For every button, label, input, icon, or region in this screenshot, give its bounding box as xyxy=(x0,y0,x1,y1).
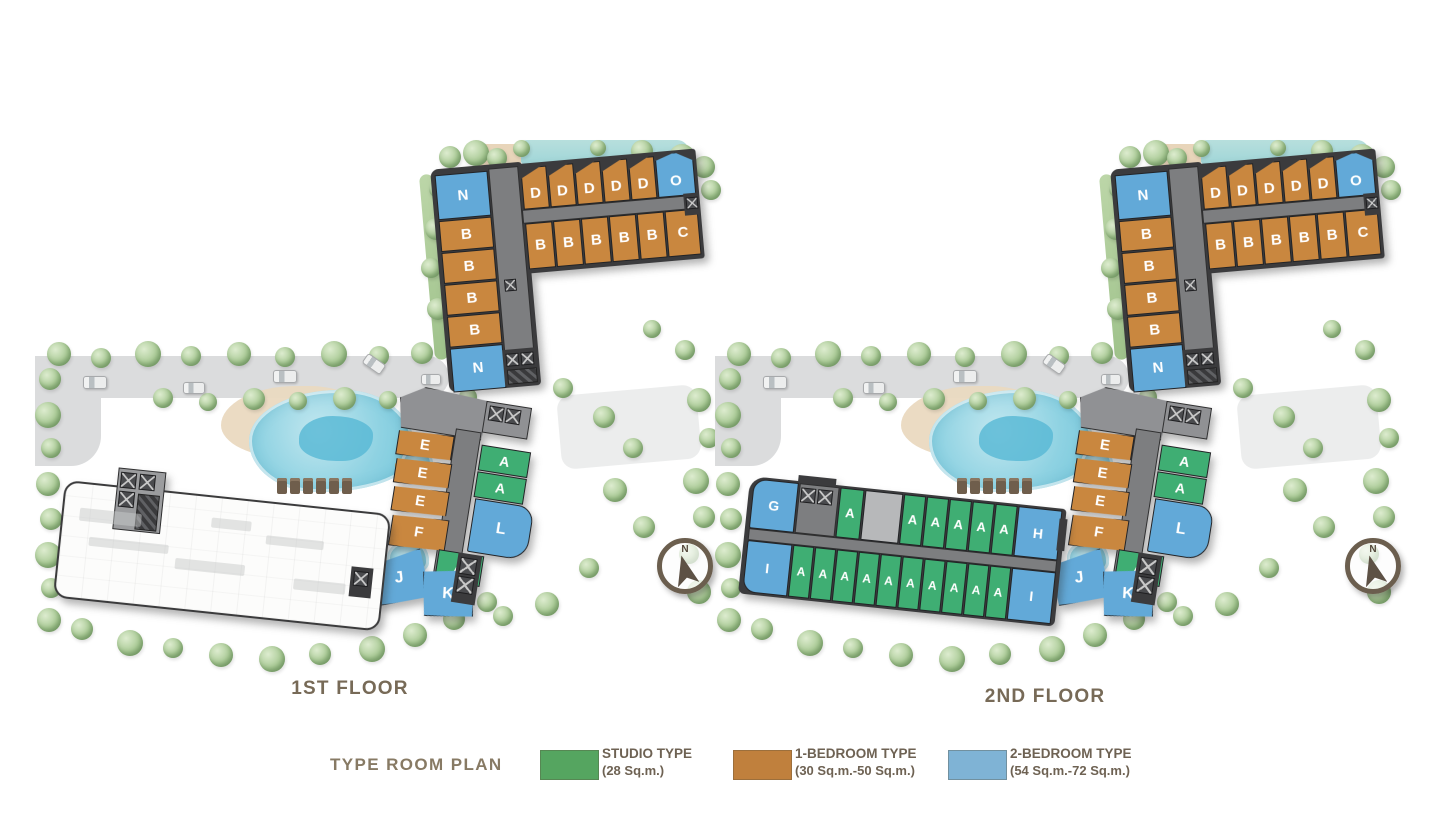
tree xyxy=(989,643,1011,665)
podium-footprint xyxy=(53,480,392,632)
tree xyxy=(633,516,655,538)
tree xyxy=(289,392,307,410)
unit-C: C xyxy=(1345,209,1382,258)
elevator-icon xyxy=(800,487,816,503)
tree xyxy=(35,402,61,428)
tree xyxy=(683,468,709,494)
elevator-icon xyxy=(1135,575,1154,594)
unit-B: B xyxy=(553,219,584,267)
tree xyxy=(227,342,251,366)
unit-B: B xyxy=(1121,248,1177,284)
tree xyxy=(1001,341,1027,367)
tree xyxy=(1381,180,1401,200)
unit-H: H xyxy=(1013,506,1062,560)
tree xyxy=(843,638,863,658)
elevator-icon xyxy=(139,474,157,492)
unit-E: E xyxy=(390,483,450,518)
unit-N: N xyxy=(1115,171,1172,220)
legend-item: 2-BEDROOM TYPE (54 Sq.m.-72 Sq.m.) xyxy=(1010,746,1180,779)
stairs xyxy=(507,367,538,385)
tree xyxy=(1313,516,1335,538)
unit-B: B xyxy=(1124,280,1180,316)
unit-B: B xyxy=(609,214,640,262)
pool-deep-area xyxy=(979,416,1054,462)
unit-L: L xyxy=(1147,498,1215,561)
compass-needle-icon xyxy=(1359,553,1388,587)
tree xyxy=(1283,478,1307,502)
first-floor-plan: NBBBBNDDDDDOBBBBBCEEEFAALAJK 1ST FLOOR N xyxy=(35,140,725,720)
pool-lounger xyxy=(970,478,980,494)
tree xyxy=(969,392,987,410)
tree xyxy=(687,388,711,412)
tree xyxy=(333,387,356,410)
unit-F: F xyxy=(388,512,450,554)
legend-swatch xyxy=(948,750,1007,780)
tree xyxy=(1083,623,1107,647)
unit-I: I xyxy=(742,540,792,596)
car xyxy=(763,376,787,389)
car xyxy=(1101,374,1121,385)
elevator-icon xyxy=(353,571,369,587)
tree xyxy=(593,406,615,428)
tree xyxy=(1039,636,1065,662)
legend-title: TYPE ROOM PLAN xyxy=(330,755,503,775)
tree xyxy=(1273,406,1295,428)
tree xyxy=(1059,391,1077,409)
unit-C: C xyxy=(665,209,702,258)
floor-plan-poster: NBBBBNDDDDDOBBBBBCEEEFAALAJK 1ST FLOOR N… xyxy=(0,0,1444,820)
elevator-icon xyxy=(520,351,534,365)
tree xyxy=(955,347,975,367)
tree xyxy=(411,342,433,364)
tree xyxy=(907,342,931,366)
tower-building: NBBBBNDDDDDOBBBBBC xyxy=(424,141,715,392)
compass-icon: N xyxy=(657,538,713,594)
tree xyxy=(91,348,111,368)
compass-needle-icon xyxy=(671,553,700,587)
tree xyxy=(715,542,741,568)
tree xyxy=(199,393,217,411)
tree xyxy=(1013,387,1036,410)
compass-north-label: N xyxy=(1369,544,1376,555)
tree xyxy=(47,342,71,366)
unit-B: B xyxy=(439,217,495,253)
elevator-icon xyxy=(455,575,474,594)
unit-E: E xyxy=(393,455,453,490)
elevator-icon xyxy=(118,491,136,509)
tree xyxy=(751,618,773,640)
elevator-icon xyxy=(1185,353,1199,367)
tree xyxy=(923,388,945,410)
tree xyxy=(209,643,233,667)
legend-item-label: 1-BEDROOM TYPE xyxy=(795,746,965,763)
unit-B: B xyxy=(1317,212,1348,260)
pool-lounger xyxy=(1022,478,1032,494)
tree xyxy=(939,646,965,672)
tree xyxy=(1363,468,1389,494)
compass-north-label: N xyxy=(681,544,688,555)
elevator-icon xyxy=(1184,408,1201,425)
tree xyxy=(37,608,61,632)
tree xyxy=(889,643,913,667)
tree xyxy=(181,346,201,366)
unit-E: E xyxy=(1073,455,1133,490)
pool-lounger xyxy=(1009,478,1019,494)
tree xyxy=(815,341,841,367)
unit-N: N xyxy=(1130,344,1187,392)
tree xyxy=(39,368,61,390)
elevator-icon xyxy=(685,197,698,210)
car xyxy=(863,382,885,394)
unit-B: B xyxy=(1127,312,1183,348)
unit-I: I xyxy=(1007,568,1056,624)
unit-B: B xyxy=(1289,214,1320,262)
unit-B: B xyxy=(1205,221,1236,269)
stairs xyxy=(1187,367,1218,385)
elevator-icon xyxy=(817,489,833,505)
tree xyxy=(833,388,853,408)
tree xyxy=(603,478,627,502)
pool-deep-area xyxy=(299,416,374,462)
site-map: NBBBBNDDDDDOBBBBBCEEEFAALAJKGAAAAAAHIAAA… xyxy=(715,140,1405,720)
legend-swatch xyxy=(733,750,792,780)
tree xyxy=(1367,388,1391,412)
tree xyxy=(1303,438,1323,458)
tree xyxy=(879,393,897,411)
tree xyxy=(117,630,143,656)
tree xyxy=(1091,342,1113,364)
tree xyxy=(71,618,93,640)
unit-B: B xyxy=(637,212,668,260)
tree xyxy=(359,636,385,662)
elevator-icon xyxy=(488,405,505,422)
tree xyxy=(135,341,161,367)
unit-B: B xyxy=(444,280,500,316)
elevator-icon xyxy=(504,279,517,292)
tree xyxy=(771,348,791,368)
tree xyxy=(715,402,741,428)
tree xyxy=(1373,506,1395,528)
tree xyxy=(693,506,715,528)
legend-item-area: (54 Sq.m.-72 Sq.m.) xyxy=(1010,763,1180,779)
unit-N: N xyxy=(435,171,492,220)
unit-L: L xyxy=(467,498,535,561)
tree xyxy=(243,388,265,410)
tree xyxy=(719,368,741,390)
unit-B: B xyxy=(441,248,497,284)
tree xyxy=(716,472,740,496)
unit-B: B xyxy=(1233,219,1264,267)
tree xyxy=(623,438,643,458)
second-floor-plan: NBBBBNDDDDDOBBBBBCEEEFAALAJKGAAAAAAHIAAA… xyxy=(715,140,1405,720)
legend-item-area: (30 Sq.m.-50 Sq.m.) xyxy=(795,763,965,779)
tree xyxy=(309,643,331,665)
tree xyxy=(1379,428,1399,448)
unit-blank xyxy=(860,490,903,544)
car xyxy=(183,382,205,394)
tree xyxy=(40,508,62,530)
tree xyxy=(579,558,599,578)
south-building: EEEFAALAJK xyxy=(1045,383,1256,634)
tree xyxy=(720,508,742,530)
tree xyxy=(153,388,173,408)
pool-lounger xyxy=(996,478,1006,494)
legend-item-label: 2-BEDROOM TYPE xyxy=(1010,746,1180,763)
tree xyxy=(321,341,347,367)
tree xyxy=(379,391,397,409)
legend-item: 1-BEDROOM TYPE (30 Sq.m.-50 Sq.m.) xyxy=(795,746,965,779)
elevator-icon xyxy=(120,472,138,490)
unit-B: B xyxy=(525,221,556,269)
elevator-icon xyxy=(504,408,521,425)
tree xyxy=(727,342,751,366)
unit-B: B xyxy=(1119,217,1175,253)
tree xyxy=(717,608,741,632)
elevator-icon xyxy=(505,353,519,367)
legend-swatch xyxy=(540,750,599,780)
tree xyxy=(275,347,295,367)
site-map: NBBBBNDDDDDOBBBBBCEEEFAALAJK xyxy=(35,140,725,720)
elevator-icon xyxy=(1365,197,1378,210)
car xyxy=(421,374,441,385)
elevator-icon xyxy=(1184,279,1197,292)
tree xyxy=(259,646,285,672)
tree xyxy=(797,630,823,656)
tree xyxy=(36,472,60,496)
pool-lounger xyxy=(983,478,993,494)
unit-B: B xyxy=(1261,216,1292,264)
elevator-icon xyxy=(1138,557,1157,576)
tree xyxy=(861,346,881,366)
floor-label: 1ST FLOOR xyxy=(260,678,440,700)
floor-label: 2ND FLOOR xyxy=(955,686,1135,708)
tower-building: NBBBBNDDDDDOBBBBBC xyxy=(1104,141,1395,392)
car xyxy=(273,370,297,383)
elevator-icon xyxy=(458,557,477,576)
compass-icon: N xyxy=(1345,538,1401,594)
unit-E: E xyxy=(1070,483,1130,518)
tree xyxy=(403,623,427,647)
second-floor-west-wing: GAAAAAAHIAAAAAAAAAAI xyxy=(737,470,1073,633)
car xyxy=(953,370,977,383)
unit-F: F xyxy=(1068,512,1130,554)
unit-B: B xyxy=(447,312,503,348)
unit-B: B xyxy=(581,216,612,264)
tree xyxy=(721,438,741,458)
tree xyxy=(41,438,61,458)
car xyxy=(83,376,107,389)
unit-N: N xyxy=(450,344,507,392)
elevator-icon xyxy=(1200,351,1214,365)
unit-G: G xyxy=(749,478,799,532)
elevator-icon xyxy=(1168,405,1185,422)
tree xyxy=(1259,558,1279,578)
tree xyxy=(163,638,183,658)
